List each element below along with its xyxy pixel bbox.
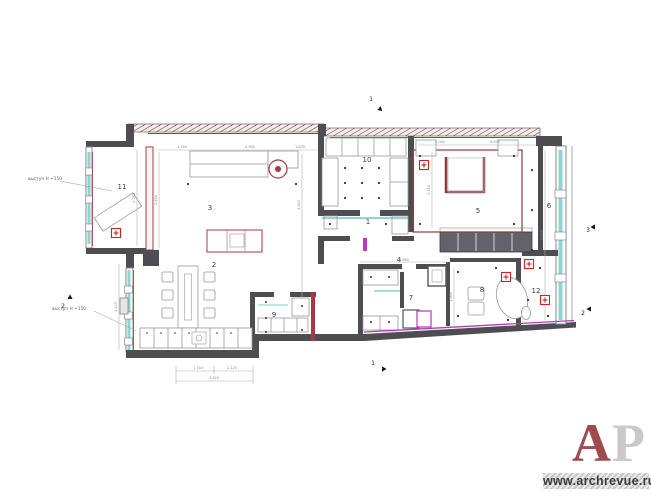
heating-cross-marker-icon xyxy=(525,260,534,269)
section-label: 1 xyxy=(371,360,375,367)
section-label: 2 xyxy=(61,303,65,310)
dimension-label: 1.830 xyxy=(295,145,305,149)
floor-plan-drawing: 1131012456798121.1642.9851.8302.0404.630… xyxy=(0,0,651,500)
room-number: 3 xyxy=(208,204,212,212)
dimension-label: 2.460 xyxy=(154,195,158,205)
floor-plan-page: 1131012456798121.1642.9851.8302.0404.630… xyxy=(0,0,651,500)
chair xyxy=(204,308,215,318)
watermark-url: www.archrevue.ru xyxy=(543,473,649,489)
chair xyxy=(204,290,215,300)
dimension-label: 1.250 xyxy=(427,185,431,195)
dimension-label: 1.985 xyxy=(399,258,409,262)
watermark-letter-a: A xyxy=(572,413,612,473)
section-label: 1 xyxy=(369,96,373,103)
dimension-label: 1.740 xyxy=(193,366,203,370)
dimension-label: 2.280 xyxy=(132,193,136,203)
chair xyxy=(162,272,173,282)
cyan-lines xyxy=(258,218,408,305)
room-number: 8 xyxy=(480,286,484,294)
room-number: 11 xyxy=(118,183,127,191)
room-number: 10 xyxy=(363,156,372,164)
dimension-label: 1.060 xyxy=(449,292,453,302)
section-arrow-icon xyxy=(382,366,387,371)
room-number: 12 xyxy=(532,287,541,295)
chair xyxy=(162,308,173,318)
annotation-label: выступ Н +150 xyxy=(52,306,86,312)
dimension-label: 2.120 xyxy=(227,366,237,370)
washer xyxy=(417,311,431,327)
sink xyxy=(196,335,202,341)
room-number: 6 xyxy=(547,202,552,210)
dimension-label: 2.985 xyxy=(245,145,255,149)
chair xyxy=(162,290,173,300)
heating-cross-marker-icon xyxy=(541,296,550,305)
heating-cross-marker-icon xyxy=(112,229,121,238)
bath-vanity xyxy=(363,270,398,285)
dimension-label: 1.164 xyxy=(177,145,188,149)
heating-cross-marker-icon xyxy=(502,273,511,282)
room-number: 7 xyxy=(409,294,413,302)
dimension-label: 2.630 xyxy=(540,230,544,240)
chair xyxy=(204,272,215,282)
heating-cross-marker-icon xyxy=(420,161,429,170)
dimension-label: 3.120 xyxy=(114,302,118,312)
watermark-letter-p: P xyxy=(612,413,646,473)
room-number: 5 xyxy=(476,207,480,215)
room-number: 2 xyxy=(212,261,216,269)
room-number: 9 xyxy=(272,311,276,319)
dimension-label: 3.625 xyxy=(209,376,219,380)
section-arrow-icon xyxy=(590,224,595,229)
room-number: 1 xyxy=(366,218,370,226)
annotation-label: выступ Н +150 xyxy=(28,176,62,182)
section-arrow-icon xyxy=(377,106,384,113)
section-arrow-icon xyxy=(586,306,591,311)
watermark-logo: AP xyxy=(572,416,646,470)
dimension-label: 3.640 xyxy=(297,200,301,210)
bed xyxy=(446,157,484,193)
section-arrow-icon xyxy=(67,294,72,299)
wardrobe-closet xyxy=(326,138,406,156)
section-label: 2 xyxy=(581,310,585,317)
dimension-label: 4.630 xyxy=(490,140,500,144)
dimension-label: 2.040 xyxy=(435,140,445,144)
section-label: 3 xyxy=(586,227,590,234)
